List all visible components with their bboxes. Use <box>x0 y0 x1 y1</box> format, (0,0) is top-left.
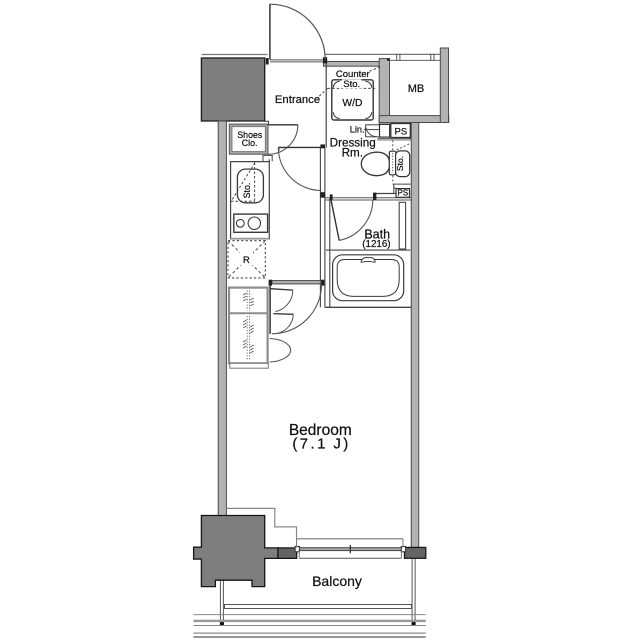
svg-text:Sto.: Sto. <box>343 79 360 90</box>
svg-text:Sto.: Sto. <box>395 156 405 171</box>
svg-text:Clo.: Clo. <box>242 138 258 148</box>
svg-text:Entrance: Entrance <box>275 94 320 106</box>
svg-text:(1216): (1216) <box>362 239 390 250</box>
svg-text:Sto.: Sto. <box>242 183 252 199</box>
svg-text:R: R <box>243 255 250 266</box>
svg-text:(7.1J): (7.1J) <box>292 436 350 453</box>
svg-text:PS: PS <box>395 127 408 138</box>
svg-text:W/D: W/D <box>342 98 362 109</box>
svg-text:MB: MB <box>408 83 425 95</box>
svg-text:Lin.: Lin. <box>350 125 365 135</box>
svg-text:PS: PS <box>397 189 408 198</box>
svg-text:Balcony: Balcony <box>312 573 362 589</box>
svg-text:Rm.: Rm. <box>342 146 363 159</box>
